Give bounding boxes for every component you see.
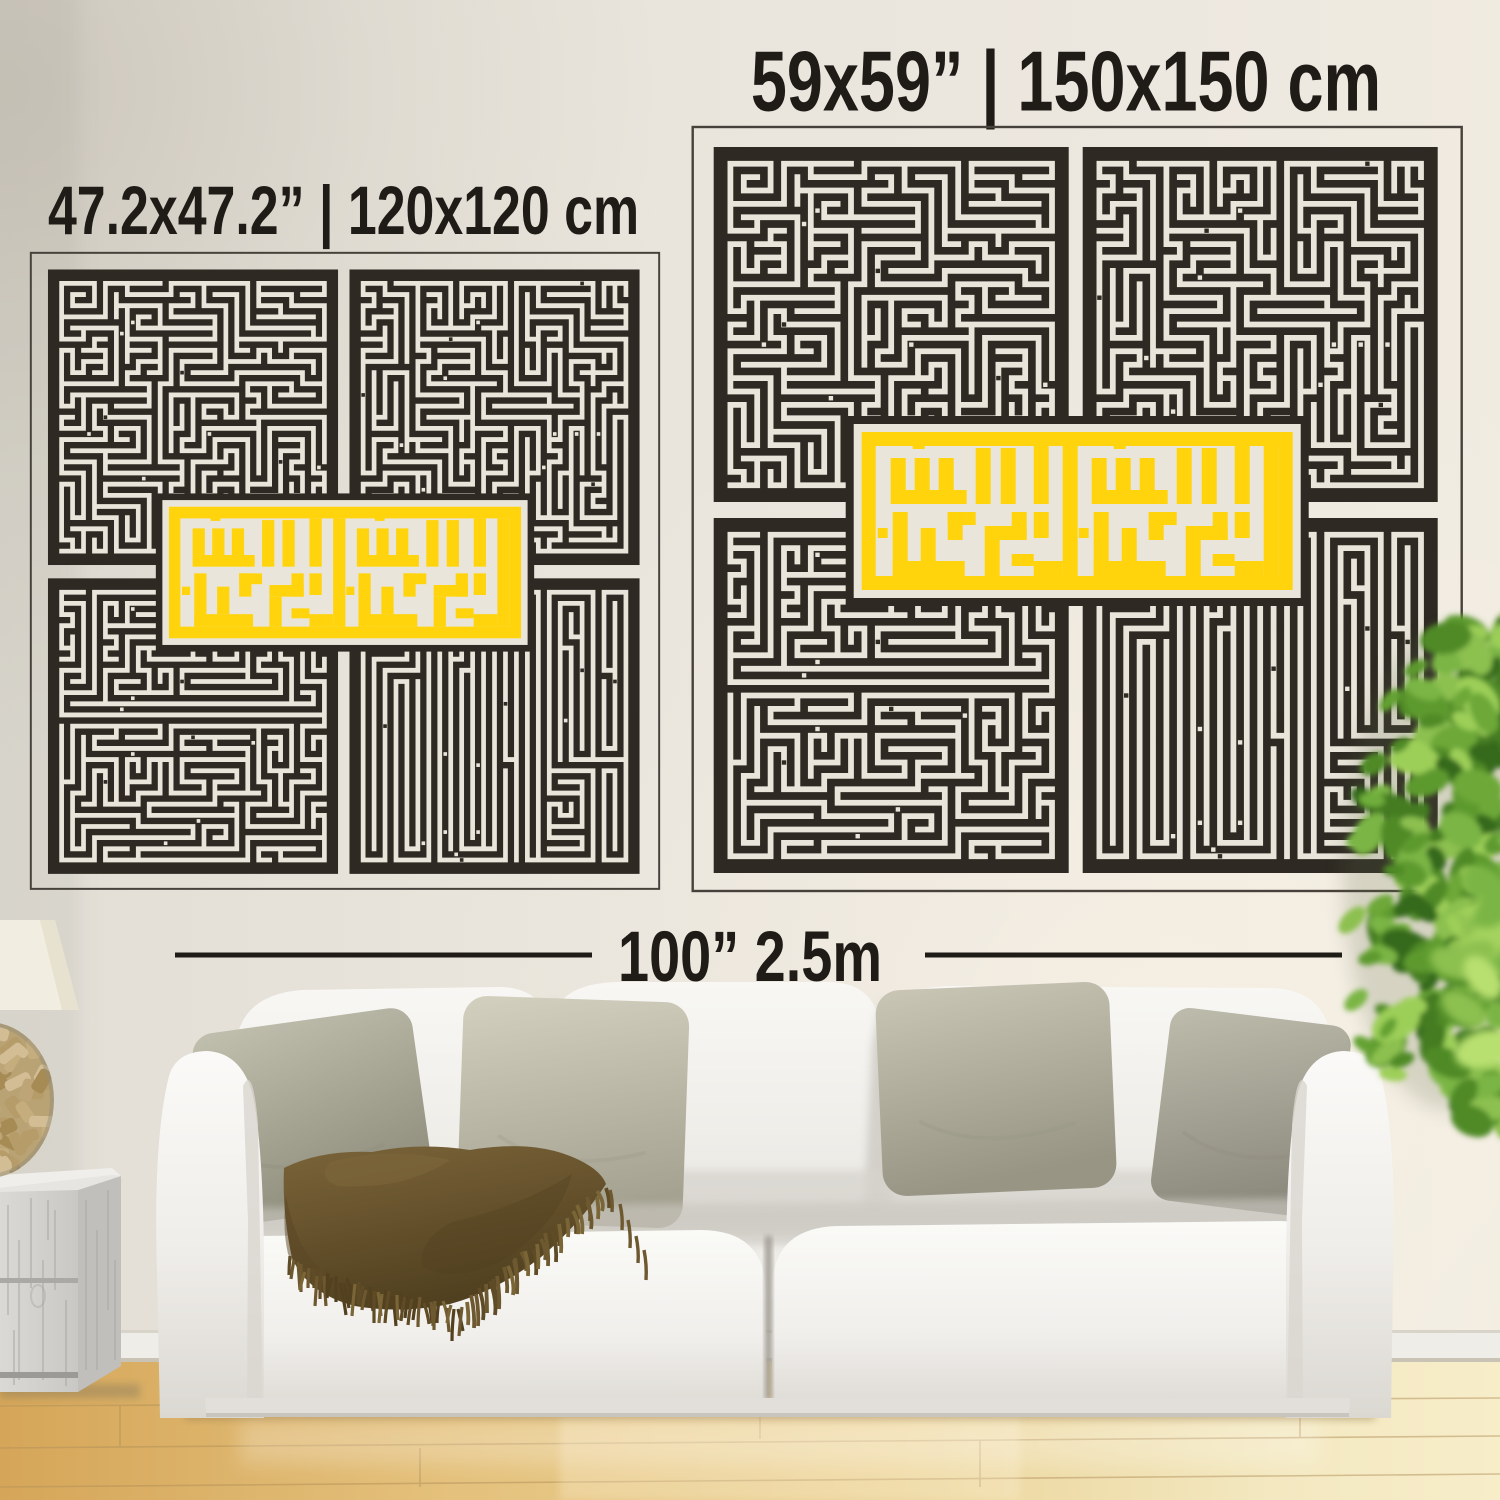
- svg-text:47.2x47.2” | 120x120 cm: 47.2x47.2” | 120x120 cm: [48, 172, 639, 251]
- svg-text:59x59” | 150x150 cm: 59x59” | 150x150 cm: [751, 35, 1381, 131]
